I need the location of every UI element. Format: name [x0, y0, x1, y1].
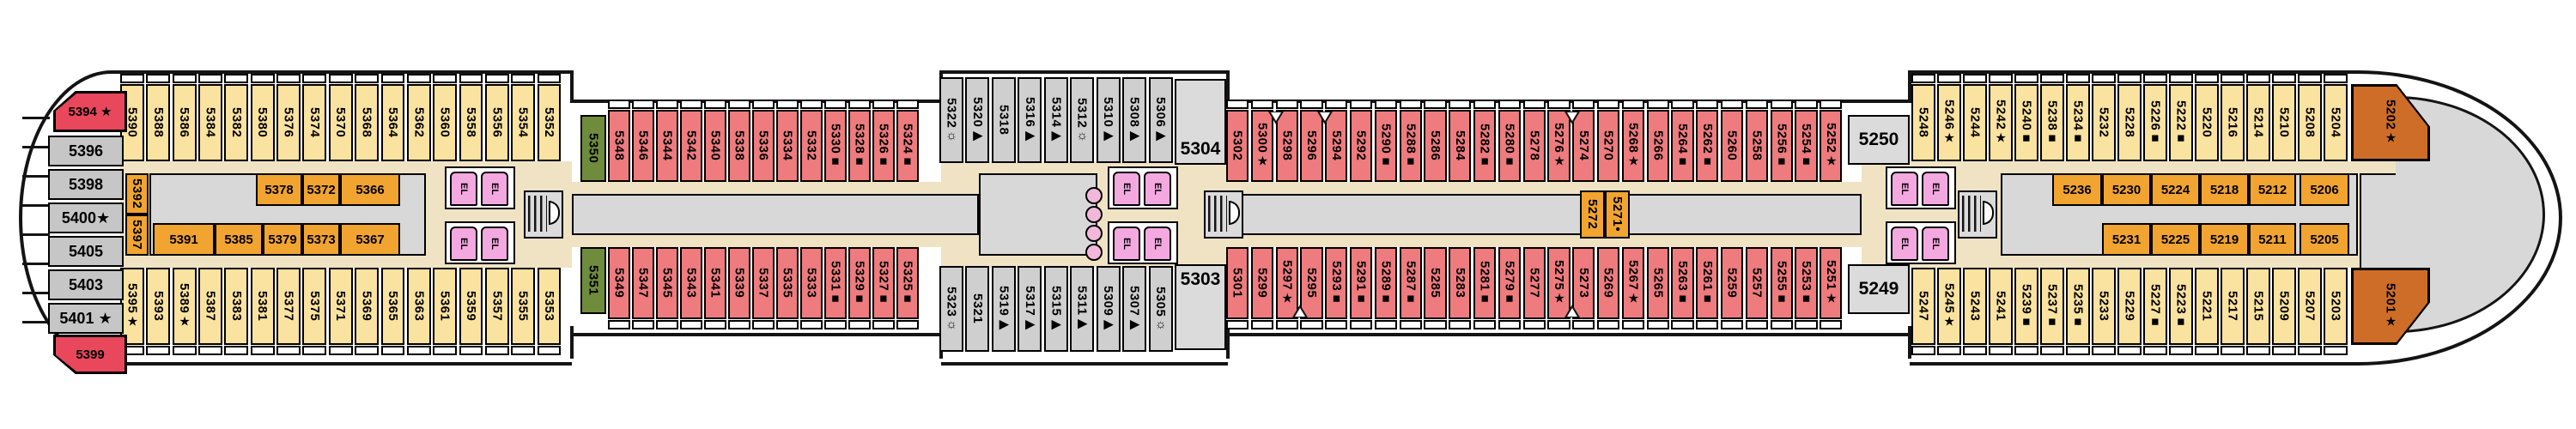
cabin-5397: 5397	[125, 214, 149, 256]
cabin-5280: 5280■	[1498, 110, 1521, 182]
balcony-cell	[276, 346, 301, 355]
balcony-cell	[608, 320, 630, 329]
center-room-2	[979, 173, 1097, 256]
elevator-label: EL	[459, 183, 469, 195]
cabin-5353: 5353	[538, 268, 562, 345]
cabin-5283: 5283	[1449, 247, 1471, 319]
balcony-cell	[1746, 320, 1768, 329]
balcony-cell	[511, 74, 535, 83]
cabin-5314: 5314▶	[1044, 77, 1068, 163]
cabin-5215: 5215	[2246, 268, 2270, 345]
balcony-cell	[680, 320, 702, 329]
cabin-5317: 5317▶	[1018, 266, 1042, 352]
cabin-5231: 5231	[2102, 223, 2151, 256]
cabin-5245: 5245★	[1937, 268, 1961, 345]
balcony-cell	[2221, 74, 2245, 83]
cabin-5236: 5236	[2052, 173, 2102, 206]
elevator-icon: EL	[481, 172, 508, 206]
balcony-cell	[2117, 346, 2142, 355]
balcony-cell	[1771, 320, 1793, 329]
balcony-cell	[1226, 320, 1249, 329]
cabin-5226: 5226■	[2143, 84, 2167, 161]
cabin-5368: 5368	[355, 84, 379, 161]
balcony-cell	[355, 74, 379, 83]
cabin-5269: 5269	[1597, 247, 1619, 319]
cabin-5362: 5362	[407, 84, 431, 161]
cabin-5332: 5332	[800, 110, 823, 182]
balcony-cell	[407, 74, 431, 83]
balcony-cell	[1300, 100, 1322, 109]
balcony-cell	[1276, 320, 1298, 329]
room-5250: 5250	[1848, 115, 1910, 165]
balcony-cell	[1911, 346, 1935, 355]
cabin-5253: 5253■	[1795, 247, 1817, 319]
cabin-5218: 5218	[2200, 173, 2249, 206]
elevator-label: EL	[1121, 183, 1132, 195]
cabin-5367: 5367	[340, 223, 400, 256]
cabin-5382: 5382	[224, 84, 248, 161]
cabin-5386: 5386	[173, 84, 197, 161]
balcony-cell	[2324, 346, 2348, 355]
balcony-cell	[1300, 320, 1322, 329]
cabin-5333: 5333	[800, 247, 823, 319]
cabin-5263: 5263■	[1671, 247, 1693, 319]
seating-alcove-icon-1	[1085, 206, 1103, 223]
balcony-cell	[459, 74, 483, 83]
cabin-5389: 5389★	[173, 268, 197, 345]
balcony-cell	[872, 100, 895, 109]
cabin-5285: 5285	[1424, 247, 1446, 319]
balcony-cell	[1523, 320, 1546, 329]
cabin-5246: 5246★	[1937, 84, 1961, 161]
elevator-label: EL	[1121, 238, 1132, 250]
cabin-5316: 5316▶	[1018, 77, 1042, 163]
cabin-5206: 5206	[2300, 173, 2349, 206]
cabin-5329: 5329■	[848, 247, 871, 319]
balcony-cell	[2040, 74, 2064, 83]
balcony-cell	[2143, 346, 2167, 355]
elevator-label: EL	[1930, 238, 1941, 250]
cabin-5290: 5290■	[1375, 110, 1397, 182]
balcony-cell	[1226, 100, 1249, 109]
balcony-cell	[459, 346, 483, 355]
seating-alcove-icon-0	[1085, 187, 1103, 204]
balcony-cell	[2195, 346, 2219, 355]
balcony-cell	[1523, 100, 1546, 109]
balcony-cell	[896, 100, 919, 109]
cabin-5220: 5220	[2195, 84, 2219, 161]
cabin-5387: 5387	[198, 268, 222, 345]
balcony-cell	[1473, 100, 1496, 109]
balcony-cell	[2272, 74, 2296, 83]
cabin-5293: 5293■	[1325, 247, 1347, 319]
balcony-cell	[704, 100, 726, 109]
cabin-5347: 5347	[632, 247, 654, 319]
cabin-5360: 5360	[433, 84, 457, 161]
balcony-cell	[1597, 100, 1619, 109]
balcony-cell	[2143, 74, 2167, 83]
cabin-5277: 5277	[1523, 247, 1546, 319]
balcony-cell	[1325, 100, 1347, 109]
balcony-cell	[1498, 100, 1521, 109]
cabin-5254: 5254■	[1795, 110, 1817, 182]
elevator-label: EL	[489, 183, 500, 195]
cabin-5212: 5212	[2249, 173, 2296, 206]
cabin-5366: 5366	[340, 173, 400, 206]
cabin-5381: 5381	[251, 268, 275, 345]
cabin-5262: 5262■	[1696, 110, 1718, 182]
cabin-5346: 5346	[632, 110, 654, 182]
cabin-5281: 5281■	[1473, 247, 1496, 319]
elevator-icon: EL	[1113, 227, 1140, 261]
cabin-5201: 5201★	[2351, 268, 2430, 345]
cabin-5391: 5391	[153, 223, 215, 256]
balcony-cell	[1721, 320, 1743, 329]
cabin-5237: 5237■	[2040, 268, 2064, 345]
cabin-5232: 5232	[2092, 84, 2116, 161]
cabin-5202-label: 5202★	[2354, 87, 2427, 159]
balcony-cell	[1276, 100, 1298, 109]
stairs-steps-0	[528, 196, 547, 232]
balcony-cell	[1820, 100, 1842, 109]
elevator-icon: EL	[1922, 227, 1949, 261]
cabin-5322: 5322☼	[939, 77, 963, 163]
balcony-cell	[1671, 100, 1693, 109]
balcony-cell	[2298, 346, 2322, 355]
balcony-cell	[704, 320, 726, 329]
cabin-5234: 5234■	[2066, 84, 2090, 161]
balcony-cell	[1671, 320, 1693, 329]
cabin-5309: 5309▶	[1097, 266, 1121, 352]
cabin-5398: 5398	[48, 169, 124, 200]
cabin-5301: 5301	[1226, 247, 1249, 319]
cabin-5292: 5292	[1350, 110, 1372, 182]
cabin-5377: 5377	[276, 268, 301, 345]
cabin-5340: 5340	[704, 110, 726, 182]
cabin-5325: 5325■	[896, 247, 919, 319]
cabin-5392: 5392	[125, 173, 149, 214]
cabin-5388: 5388	[146, 84, 170, 161]
cabin-5319: 5319▶	[992, 266, 1016, 352]
cabin-5302: 5302	[1226, 110, 1249, 182]
cabin-5305: 5305☼	[1149, 266, 1173, 352]
cabin-5378: 5378	[256, 173, 302, 206]
balcony-cell	[224, 346, 248, 355]
cabin-5307: 5307▶	[1122, 266, 1146, 352]
balcony-cell	[511, 346, 535, 355]
balcony-cell	[1696, 320, 1718, 329]
cabin-5350: 5350	[580, 115, 606, 182]
cabin-5210: 5210	[2272, 84, 2296, 161]
balcony-cell	[1597, 320, 1619, 329]
balcony-cell	[1449, 100, 1471, 109]
cabin-5326: 5326■	[872, 110, 895, 182]
cabin-5288: 5288■	[1400, 110, 1422, 182]
hull-step-0	[570, 70, 574, 103]
elevator-label: EL	[1899, 238, 1910, 250]
cabin-5336: 5336	[752, 110, 775, 182]
cabin-5287: 5287■	[1400, 247, 1422, 319]
elevator-label: EL	[1899, 183, 1910, 195]
cabin-5257: 5257	[1746, 247, 1768, 319]
cabin-5356: 5356	[485, 84, 509, 161]
balcony-cell	[2014, 74, 2038, 83]
cabin-5202: 5202★	[2351, 84, 2430, 161]
elevator-icon: EL	[481, 227, 508, 261]
cabin-5217: 5217	[2221, 268, 2245, 345]
stairs-steps-1	[1208, 196, 1227, 232]
center-room-6	[2360, 173, 2401, 271]
cabin-5259: 5259	[1721, 247, 1743, 319]
balcony-cell	[752, 320, 775, 329]
balcony-cell	[1424, 320, 1446, 329]
balcony-cell	[355, 346, 379, 355]
balcony-cell	[1350, 320, 1372, 329]
cabin-5216: 5216	[2221, 84, 2245, 161]
cabin-5308: 5308▶	[1122, 77, 1146, 163]
cabin-5243: 5243	[1963, 268, 1987, 345]
cabin-5359: 5359	[459, 268, 483, 345]
balcony-cell	[2117, 74, 2142, 83]
cabin-5369: 5369	[355, 268, 379, 345]
elevator-label: EL	[1152, 238, 1163, 250]
hull-step-b2	[1226, 326, 1230, 359]
balcony-cell	[1721, 100, 1743, 109]
balcony-cell	[776, 100, 799, 109]
elevator-icon: EL	[1891, 227, 1918, 261]
balcony-cell	[1350, 100, 1372, 109]
balcony-cell	[2040, 346, 2064, 355]
cabin-5375: 5375	[302, 268, 326, 345]
cabin-5252: 5252★	[1820, 110, 1842, 182]
cabin-5311: 5311▶	[1070, 266, 1094, 352]
balcony-cell	[1251, 100, 1273, 109]
cabin-5379: 5379	[263, 223, 302, 256]
balcony-cell	[198, 74, 222, 83]
balcony-cell	[485, 74, 509, 83]
balcony-cell	[776, 320, 799, 329]
cabin-5403: 5403	[48, 269, 124, 300]
balcony-cell	[1547, 100, 1570, 109]
cabin-5396: 5396	[48, 136, 124, 166]
cabin-5207: 5207	[2298, 268, 2322, 345]
elevator-icon: EL	[1144, 172, 1171, 206]
cabin-5256: 5256■	[1771, 110, 1793, 182]
cabin-5348: 5348	[608, 110, 630, 182]
seating-alcove-icon-2	[1085, 225, 1103, 242]
balcony-cell	[2169, 74, 2193, 83]
cabin-5363: 5363	[407, 268, 431, 345]
balcony-cell	[1375, 320, 1397, 329]
balcony-cell	[381, 74, 405, 83]
cabin-5267: 5267★	[1622, 247, 1644, 319]
balcony-cell	[1795, 100, 1817, 109]
cabin-5244: 5244	[1963, 84, 1987, 161]
cabin-5224: 5224	[2151, 173, 2200, 206]
cabin-5345: 5345	[656, 247, 678, 319]
cabin-5271: 5271•	[1605, 190, 1630, 239]
elevator-icon: EL	[1144, 227, 1171, 261]
balcony-cell	[1424, 100, 1446, 109]
balcony-cell	[632, 100, 654, 109]
stern-deck-line-6	[22, 292, 50, 294]
balcony-cell	[656, 100, 678, 109]
balcony-cell	[1989, 74, 2013, 83]
balcony-cell	[302, 346, 326, 355]
cabin-5318: 5318	[992, 77, 1016, 163]
balcony-cell	[2014, 346, 2038, 355]
elevator-label: EL	[1930, 183, 1941, 195]
balcony-cell	[848, 100, 871, 109]
cabin-5291: 5291■	[1350, 247, 1372, 319]
cabin-5343: 5343	[680, 247, 702, 319]
cabin-5384: 5384	[198, 84, 222, 161]
balcony-cell	[1647, 100, 1669, 109]
cabin-5242: 5242★	[1989, 84, 2013, 161]
cabin-5268: 5268★	[1622, 110, 1644, 182]
elevator-label: EL	[459, 238, 469, 250]
elevator-icon: EL	[450, 227, 477, 261]
cabin-5228: 5228	[2117, 84, 2142, 161]
cabin-5365: 5365	[381, 268, 405, 345]
cabin-5393: 5393	[146, 268, 170, 345]
cabin-5324: 5324■	[896, 110, 919, 182]
cabin-5357: 5357	[485, 268, 509, 345]
cabin-5289: 5289■	[1375, 247, 1397, 319]
balcony-cell	[198, 346, 222, 355]
cabin-5351: 5351	[580, 247, 606, 314]
elevator-label: EL	[489, 238, 500, 250]
balcony-cell	[1937, 74, 1961, 83]
stern-deck-line-3	[22, 204, 50, 207]
balcony-cell	[2066, 346, 2090, 355]
cabin-5209: 5209	[2272, 268, 2296, 345]
balcony-cell	[538, 74, 562, 83]
cabin-5327: 5327■	[872, 247, 895, 319]
cabin-5227: 5227■	[2143, 268, 2167, 345]
balcony-cell	[2092, 346, 2116, 355]
cabin-5219: 5219	[2200, 223, 2249, 256]
cabin-5371: 5371	[329, 268, 353, 345]
cabin-5205: 5205	[2300, 223, 2349, 256]
stern-deck-line-4	[22, 233, 50, 236]
elevator-icon: EL	[450, 172, 477, 206]
cabin-5315: 5315▶	[1044, 266, 1068, 352]
cabin-5331: 5331■	[824, 247, 847, 319]
center-room-4	[1626, 194, 1862, 235]
cabin-5266: 5266	[1647, 110, 1669, 182]
balcony-cell	[632, 320, 654, 329]
balcony-cell	[120, 74, 144, 83]
balcony-cell	[872, 320, 895, 329]
balcony-cell	[1963, 74, 1987, 83]
balcony-cell	[1622, 320, 1644, 329]
balcony-cell	[276, 74, 301, 83]
balcony-cell	[2246, 346, 2270, 355]
elevator-icon: EL	[1922, 172, 1949, 206]
cabin-5239: 5239■	[2014, 268, 2038, 345]
balcony-cell	[1375, 100, 1397, 109]
cabin-5241: 5241	[1989, 268, 2013, 345]
balcony-cell	[728, 320, 750, 329]
cabin-5380: 5380	[251, 84, 275, 161]
marker-triangle-bottom-0	[1292, 305, 1308, 317]
balcony-cell	[1911, 74, 1935, 83]
balcony-cell	[224, 74, 248, 83]
balcony-cell	[146, 74, 170, 83]
cabin-5222: 5222■	[2169, 84, 2193, 161]
cabin-5337: 5337	[752, 247, 775, 319]
balcony-cell	[1795, 320, 1817, 329]
balcony-cell	[824, 320, 847, 329]
cabin-5310: 5310▶	[1097, 77, 1121, 163]
balcony-cell	[896, 320, 919, 329]
balcony-cell	[680, 100, 702, 109]
cabin-5265: 5265	[1647, 247, 1669, 319]
balcony-cell	[1400, 320, 1422, 329]
balcony-cell	[485, 346, 509, 355]
hull-step-b0	[570, 326, 574, 359]
cabin-5255: 5255■	[1771, 247, 1793, 319]
balcony-cell	[2092, 74, 2116, 83]
balcony-cell	[433, 346, 457, 355]
balcony-cell	[800, 320, 823, 329]
balcony-cell	[329, 346, 353, 355]
cabin-5270: 5270	[1597, 110, 1619, 182]
balcony-cell	[2246, 74, 2270, 83]
cabin-5203: 5203	[2324, 268, 2348, 345]
cabin-5339: 5339	[728, 247, 750, 319]
cabin-5201-label: 5201★	[2354, 270, 2427, 342]
marker-triangle-top-2	[1564, 112, 1580, 124]
marker-triangle-top-0	[1268, 112, 1284, 124]
cabin-5223: 5223■	[2169, 268, 2193, 345]
cabin-5248: 5248	[1911, 84, 1935, 161]
cabin-5261: 5261■	[1696, 247, 1718, 319]
balcony-cell	[2221, 346, 2245, 355]
cabin-5354: 5354	[511, 84, 535, 161]
balcony-cell	[381, 346, 405, 355]
cabin-5323: 5323☼	[939, 266, 963, 352]
balcony-cell	[1473, 320, 1496, 329]
balcony-cell	[1696, 100, 1718, 109]
cabin-5335: 5335	[776, 247, 799, 319]
cabin-5374: 5374	[302, 84, 326, 161]
balcony-cell	[1449, 320, 1471, 329]
elevator-icon: EL	[1891, 172, 1918, 206]
balcony-cell	[2298, 74, 2322, 83]
cabin-5352: 5352	[538, 84, 562, 161]
cabin-5334: 5334	[776, 110, 799, 182]
cabin-5306: 5306▶	[1149, 77, 1173, 163]
cabin-5364: 5364	[381, 84, 405, 161]
balcony-cell	[656, 320, 678, 329]
cabin-5338: 5338	[728, 110, 750, 182]
balcony-cell	[1572, 100, 1595, 109]
cabin-5258: 5258	[1746, 110, 1768, 182]
stern-deck-line-2	[22, 175, 50, 178]
cabin-5395: 5395★	[120, 268, 144, 345]
cabin-5399: 5399	[53, 335, 127, 374]
cabin-5383: 5383	[224, 268, 248, 345]
balcony-cell	[1989, 346, 2013, 355]
cabin-5229: 5229	[2117, 268, 2142, 345]
cabin-5299: 5299	[1251, 247, 1273, 319]
cabin-5260: 5260	[1721, 110, 1743, 182]
cabin-5214: 5214	[2246, 84, 2270, 161]
cabin-5233: 5233	[2092, 268, 2116, 345]
balcony-cell	[1572, 320, 1595, 329]
